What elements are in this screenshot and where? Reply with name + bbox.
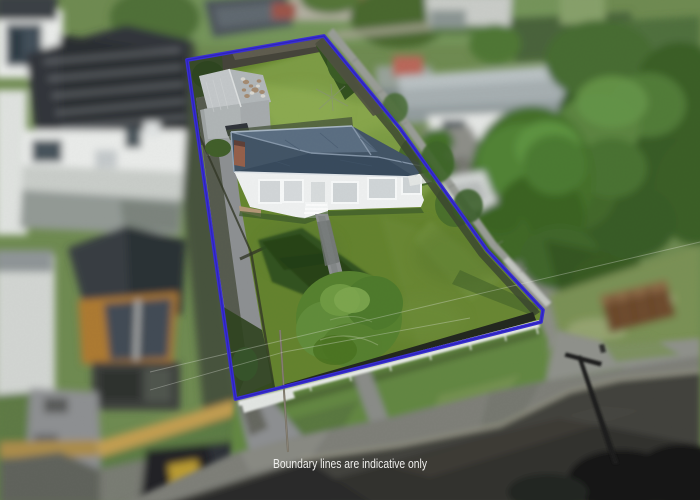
svg-text:Boundary lines are indicative: Boundary lines are indicative only [273, 457, 428, 471]
